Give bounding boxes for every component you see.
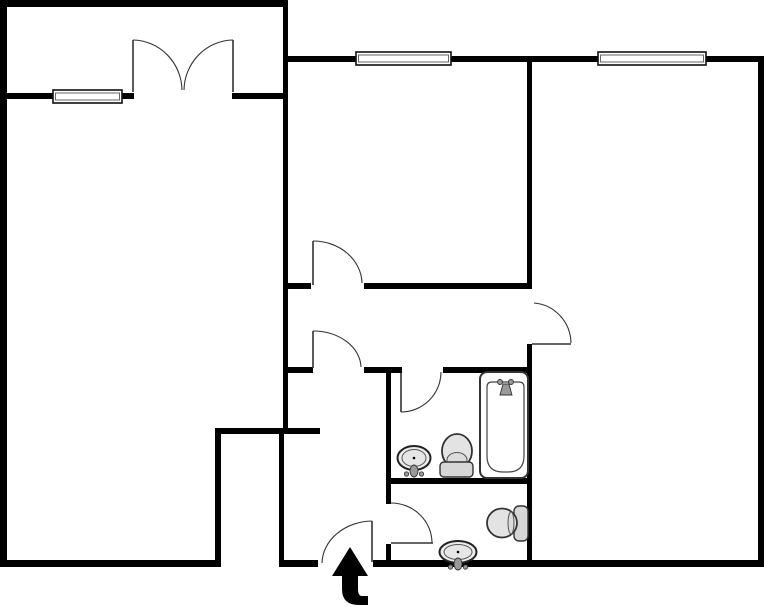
wc-sink-faucet — [454, 558, 462, 570]
wall-segment — [232, 93, 283, 99]
wc-sink-drain — [457, 551, 460, 554]
balcony-window — [53, 90, 122, 103]
floor-plan-svg — [0, 0, 764, 607]
wall-segment — [758, 56, 764, 567]
bathroom-door-swing-arc — [401, 372, 441, 412]
doors-layer — [133, 40, 571, 563]
arrow-layer — [332, 547, 368, 605]
bathtub-faucet-knob — [498, 380, 503, 385]
wall-segment — [0, 0, 7, 567]
wall-segment — [283, 283, 311, 289]
wall-segment — [706, 56, 764, 62]
wall-segment — [283, 367, 313, 373]
wc-sink-faucet-handle — [463, 565, 467, 569]
entrance-arrow — [332, 547, 368, 605]
wall-segment — [364, 283, 532, 289]
wall-segment — [122, 93, 134, 99]
floor-plan — [0, 0, 764, 607]
wall-segment — [215, 428, 320, 434]
wall-segment — [283, 56, 356, 62]
wall-segment — [0, 560, 220, 567]
wall-segment — [364, 367, 402, 373]
walls-layer — [0, 0, 764, 567]
wall-segment — [386, 544, 391, 567]
bathroom-sink-drain — [413, 457, 416, 460]
wall-segment — [527, 56, 532, 287]
wall-segment — [373, 560, 764, 567]
bathroom-sink-faucet-handle — [419, 472, 423, 476]
wall-segment — [0, 0, 288, 7]
bathroom-sink-faucet — [410, 465, 418, 477]
wall-segment — [7, 93, 53, 99]
right-room-door-swing-arc — [534, 303, 571, 343]
wc-toilet-seat — [508, 512, 514, 534]
wall-segment — [215, 430, 221, 567]
bathroom-sink-faucet-handle — [404, 472, 408, 476]
wc-sink-faucet-handle — [448, 565, 452, 569]
wall-segment — [451, 56, 598, 62]
fixtures-layer — [398, 372, 529, 570]
windows-layer — [53, 52, 706, 103]
middle-room-door-swing-arc — [313, 241, 362, 283]
balcony-door-right-swing-arc — [184, 40, 233, 90]
balcony-door-left-swing-arc — [133, 40, 182, 90]
wall-segment — [279, 430, 284, 567]
right-room-window — [598, 52, 706, 65]
middle-room-window — [356, 52, 451, 65]
corridor-door-swing-arc — [313, 331, 361, 367]
wc-door-swing-arc — [391, 503, 432, 543]
bathroom-toilet-tank — [440, 462, 473, 477]
wall-segment — [279, 560, 318, 567]
